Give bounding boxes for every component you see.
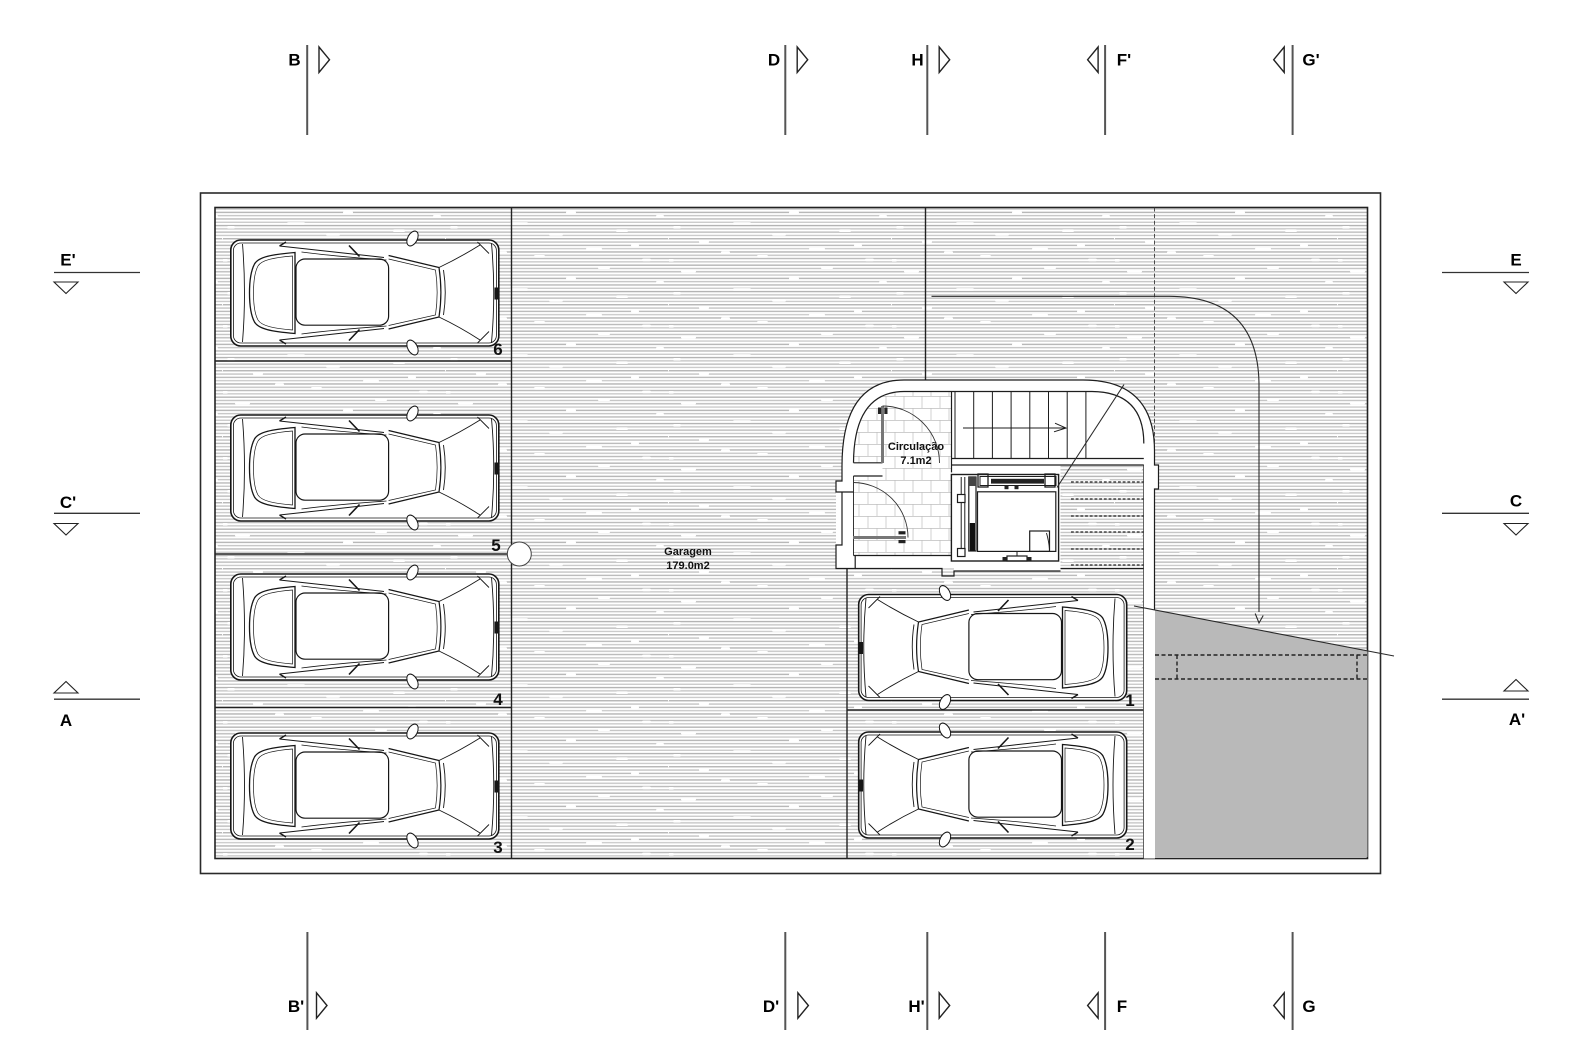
svg-text:H': H'	[908, 997, 924, 1016]
svg-text:C': C'	[60, 493, 76, 512]
svg-text:3: 3	[493, 838, 502, 857]
svg-text:D: D	[768, 51, 780, 70]
svg-text:7.1m2: 7.1m2	[900, 455, 931, 467]
svg-text:F: F	[1117, 997, 1127, 1016]
svg-text:C: C	[1510, 492, 1522, 511]
svg-text:6: 6	[493, 340, 502, 359]
svg-text:E': E'	[60, 251, 75, 270]
svg-text:4: 4	[493, 690, 503, 709]
svg-text:Circulação: Circulação	[888, 441, 945, 453]
svg-text:D': D'	[763, 997, 779, 1016]
svg-text:E: E	[1510, 251, 1521, 270]
svg-text:5: 5	[491, 536, 500, 555]
svg-text:1: 1	[1125, 691, 1134, 710]
svg-text:179.0m2: 179.0m2	[666, 560, 709, 572]
svg-text:Garagem: Garagem	[664, 546, 712, 558]
svg-text:G: G	[1302, 997, 1315, 1016]
svg-text:B: B	[288, 51, 300, 70]
svg-text:2: 2	[1125, 835, 1134, 854]
svg-text:B': B'	[288, 997, 304, 1016]
svg-text:G': G'	[1302, 51, 1319, 70]
svg-text:F': F'	[1117, 51, 1131, 70]
svg-text:A': A'	[1509, 710, 1525, 729]
svg-text:H: H	[911, 51, 923, 70]
svg-text:A: A	[60, 711, 72, 730]
